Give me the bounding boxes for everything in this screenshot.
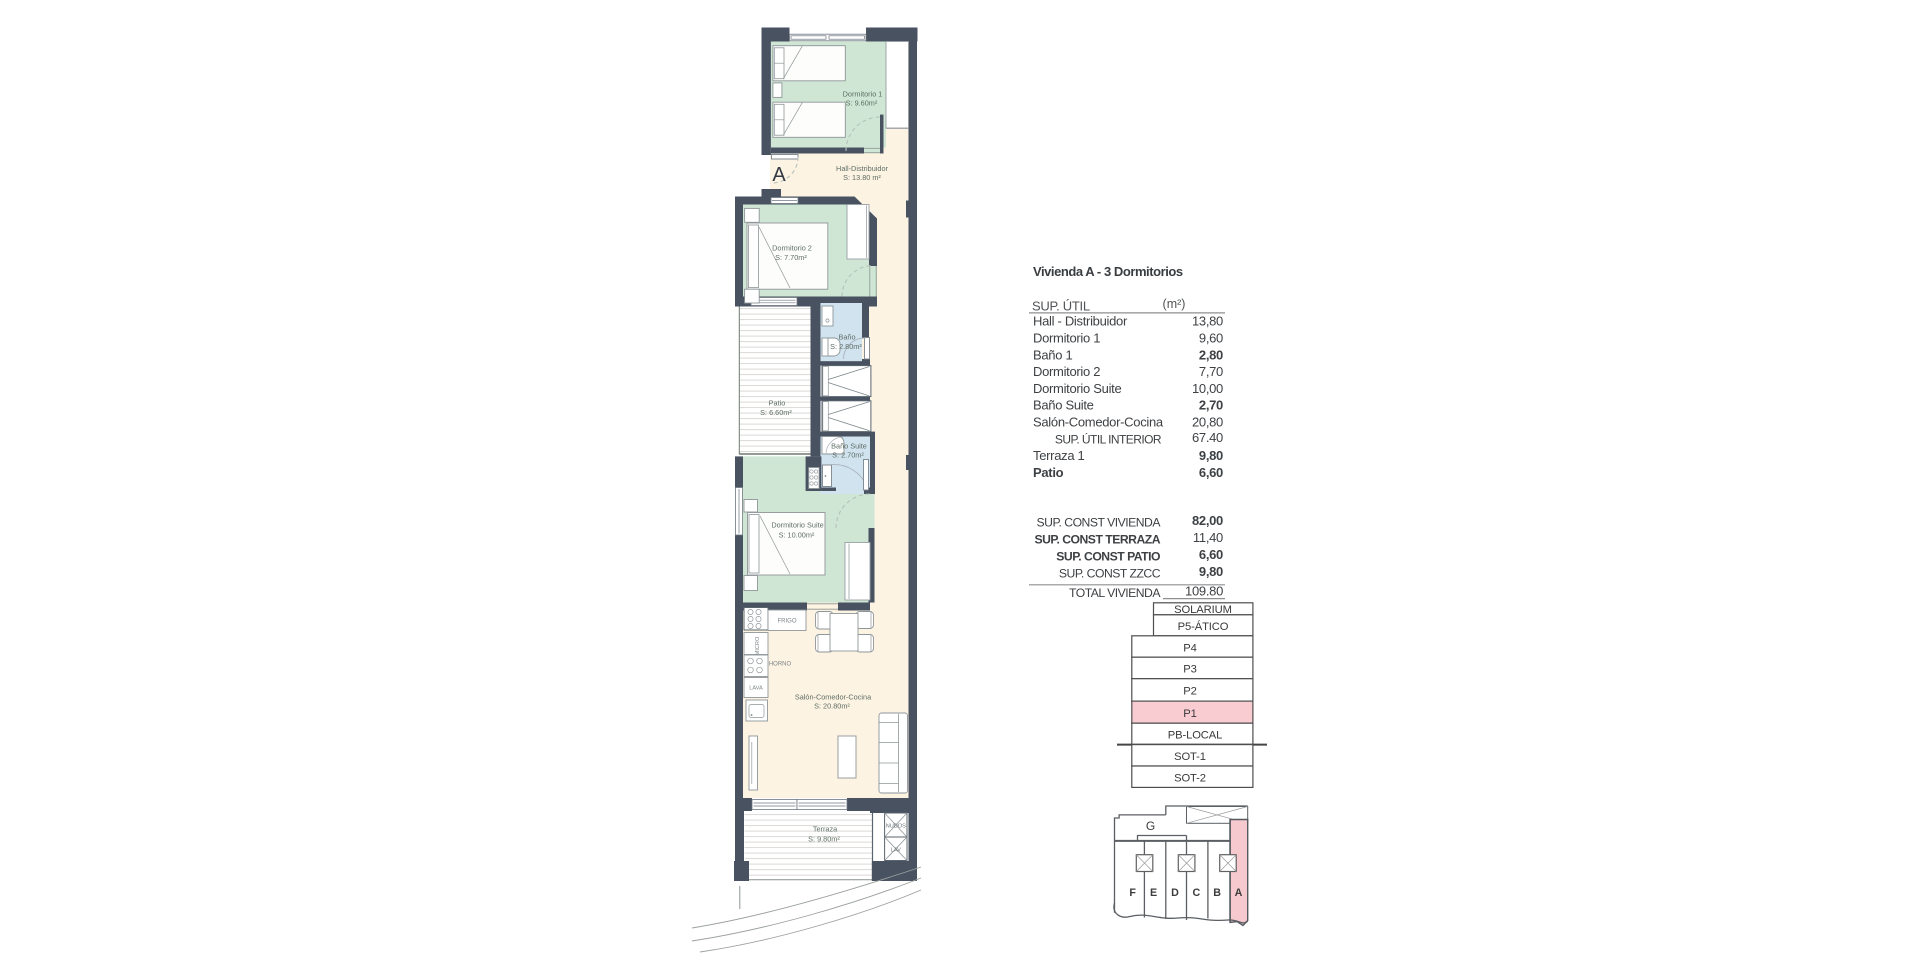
svg-text:Hall-Distribuidor: Hall-Distribuidor	[836, 164, 888, 173]
svg-text:S: 20.80m²: S: 20.80m²	[814, 702, 850, 711]
svg-text:MICRO: MICRO	[755, 636, 761, 655]
svg-text:FRIGO: FRIGO	[778, 619, 797, 625]
svg-text:6,60: 6,60	[1199, 465, 1223, 480]
svg-text:SUP. CONST TERRAZA: SUP. CONST TERRAZA	[1034, 533, 1160, 547]
svg-text:E: E	[1150, 887, 1157, 899]
svg-text:A: A	[1235, 887, 1243, 899]
svg-text:9,60: 9,60	[1199, 331, 1223, 346]
svg-text:Baño 1: Baño 1	[1033, 347, 1072, 362]
svg-text:F: F	[1129, 887, 1136, 899]
svg-text:P5-ÁTICO: P5-ÁTICO	[1178, 620, 1229, 633]
svg-text:S: 9.60m²: S: 9.60m²	[846, 99, 878, 108]
svg-text:S: 2.70m²: S: 2.70m²	[832, 451, 864, 460]
svg-text:S: 6.60m²: S: 6.60m²	[760, 408, 792, 417]
svg-text:Terraza: Terraza	[813, 825, 838, 834]
svg-text:Dormitorio 1: Dormitorio 1	[1033, 331, 1100, 346]
svg-text:S: 10.00m²: S: 10.00m²	[779, 531, 815, 540]
svg-text:SUP. CONST PATIO: SUP. CONST PATIO	[1056, 550, 1160, 564]
svg-text:6,60: 6,60	[1199, 547, 1223, 562]
svg-text:G: G	[1146, 819, 1155, 833]
svg-text:LAVA: LAVA	[749, 686, 763, 692]
svg-text:9,80: 9,80	[1199, 564, 1223, 579]
svg-text:HORNO: HORNO	[769, 662, 792, 668]
svg-text:Patio: Patio	[769, 399, 786, 408]
svg-text:(m²): (m²)	[1163, 297, 1186, 311]
svg-text:SUP. CONST VIVIENDA: SUP. CONST VIVIENDA	[1037, 516, 1162, 530]
svg-text:Dormitorio 2: Dormitorio 2	[772, 244, 812, 253]
svg-text:82,00: 82,00	[1192, 513, 1223, 528]
svg-text:S: 13.80 m²: S: 13.80 m²	[843, 173, 881, 182]
svg-text:P1: P1	[1183, 708, 1196, 720]
svg-text:Hall - Distribuidor: Hall - Distribuidor	[1033, 314, 1128, 329]
svg-text:13,80: 13,80	[1192, 314, 1223, 329]
svg-text:7,70: 7,70	[1199, 364, 1223, 379]
svg-text:Terraza 1: Terraza 1	[1033, 448, 1085, 463]
svg-text:SUP. CONST ZZCC: SUP. CONST ZZCC	[1059, 567, 1161, 581]
svg-text:9,80: 9,80	[1199, 448, 1223, 463]
svg-text:S: 9.80m²: S: 9.80m²	[808, 835, 840, 844]
svg-text:Dormitorio Suite: Dormitorio Suite	[1033, 381, 1121, 396]
svg-text:109.80: 109.80	[1185, 584, 1223, 599]
svg-text:Dormitorio 1: Dormitorio 1	[843, 90, 883, 99]
svg-text:Salón-Comedor-Cocina: Salón-Comedor-Cocina	[795, 693, 872, 702]
svg-text:SOT-2: SOT-2	[1174, 773, 1206, 785]
svg-text:Baño Suite: Baño Suite	[1033, 398, 1094, 413]
svg-text:P2: P2	[1183, 686, 1196, 698]
svg-text:S: 7.70m²: S: 7.70m²	[775, 253, 807, 262]
svg-text:P4: P4	[1183, 642, 1196, 654]
svg-text:Patio: Patio	[1033, 465, 1064, 480]
svg-text:20,80: 20,80	[1192, 415, 1223, 430]
svg-text:S: 2.80m²: S: 2.80m²	[830, 342, 862, 351]
svg-text:A: A	[772, 164, 786, 186]
svg-text:11,40: 11,40	[1193, 530, 1223, 545]
svg-text:Vivienda A - 3 Dormitorios: Vivienda A - 3 Dormitorios	[1033, 264, 1183, 279]
svg-text:Dormitorio 2: Dormitorio 2	[1033, 364, 1100, 379]
svg-text:SOT-1: SOT-1	[1174, 751, 1206, 763]
svg-text:Baño: Baño	[838, 333, 855, 342]
svg-text:D: D	[1171, 887, 1179, 899]
svg-text:C: C	[1193, 887, 1201, 899]
svg-text:67.40: 67.40	[1192, 430, 1223, 445]
svg-text:SUP. ÚTIL: SUP. ÚTIL	[1032, 299, 1090, 314]
svg-text:TOTAL VIVIENDA: TOTAL VIVIENDA	[1069, 586, 1161, 600]
svg-text:PB-LOCAL: PB-LOCAL	[1168, 730, 1223, 742]
svg-text:2,80: 2,80	[1199, 347, 1223, 362]
svg-text:Dormitorio Suite: Dormitorio Suite	[771, 521, 823, 530]
svg-text:Baño Suite: Baño Suite	[831, 442, 867, 451]
svg-text:10,00: 10,00	[1192, 381, 1223, 396]
svg-text:2,70: 2,70	[1199, 398, 1223, 413]
svg-text:NUDOS: NUDOS	[886, 824, 906, 830]
svg-text:LAV: LAV	[891, 848, 901, 854]
svg-text:SUP. ÚTIL INTERIOR: SUP. ÚTIL INTERIOR	[1055, 431, 1162, 446]
svg-text:Salón-Comedor-Cocina: Salón-Comedor-Cocina	[1033, 415, 1164, 430]
svg-text:B: B	[1213, 887, 1221, 899]
svg-text:P3: P3	[1183, 664, 1196, 676]
